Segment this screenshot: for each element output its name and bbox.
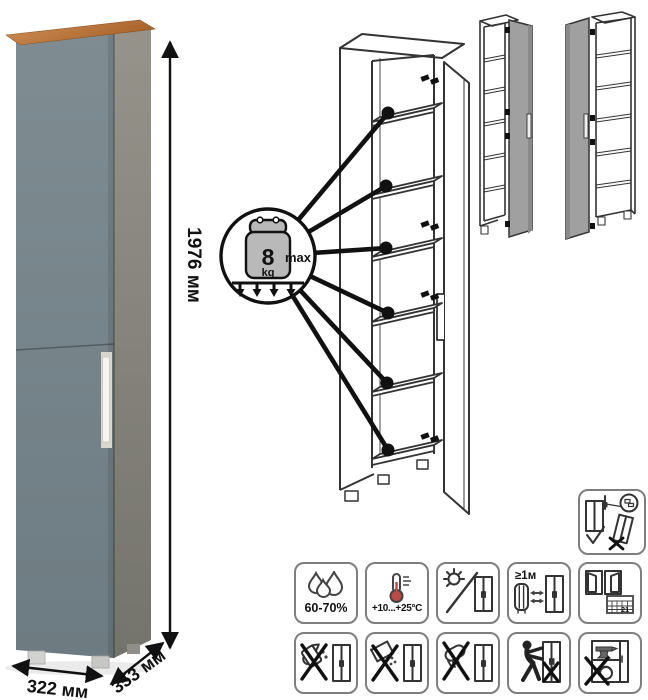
no-direct-sunlight-icon [436, 562, 500, 624]
x-mark [586, 658, 608, 684]
shelf-dots [380, 107, 395, 457]
height-dimension-label: 1976 мм [183, 227, 204, 303]
jug-crossed-icon [299, 638, 353, 688]
radiator-distance-icon: ≥1м [512, 568, 566, 618]
door-handle-outline [437, 294, 444, 340]
carcass-top-face [340, 34, 464, 58]
anchor-to-wall-drawing [582, 493, 642, 551]
foot-outline [378, 475, 389, 484]
overload-crossed-icon [583, 638, 637, 688]
person-figure [523, 641, 543, 681]
handle-mark [527, 114, 531, 138]
cabinet-side-panel [114, 26, 151, 658]
front-left-foot [28, 651, 45, 664]
product-sheet: 1976 мм 322 мм 353 мм [0, 0, 648, 700]
water-drops-icon [301, 571, 351, 601]
door-edge-shade [108, 32, 114, 658]
width-dimension-label: 322 мм [26, 676, 89, 700]
front-right-foot [92, 656, 109, 668]
no-dragging-icon [507, 632, 571, 694]
temperature-icon: +10...+25°C [365, 562, 429, 624]
product-render: 1976 мм 322 мм 353 мм [0, 0, 212, 700]
foot-outline [417, 460, 428, 469]
no-wet-cloth-icon [436, 632, 500, 694]
max-load-callout: 8 kg max [221, 209, 315, 303]
weight-unit: kg [262, 267, 275, 279]
foot-outline [345, 491, 358, 501]
powder-box-crossed-icon [370, 638, 424, 688]
cloth-hand-crossed-icon [441, 638, 495, 688]
anchor-to-wall-warning-icon [578, 489, 646, 555]
hinge-marks [590, 29, 595, 229]
door-variant-left-hinge [552, 8, 648, 246]
double-arrows [530, 591, 544, 604]
distance-from-heat-icon: ≥1м [507, 562, 571, 624]
max-label: max [285, 250, 312, 265]
open-door [444, 62, 469, 514]
shelf-load-diagram: 8 kg max [212, 6, 478, 522]
hinges [420, 72, 439, 446]
shelves [372, 103, 442, 465]
thermometer-icon [372, 573, 422, 603]
person-pushing-crossed-icon [512, 638, 566, 688]
rear-foot [127, 644, 140, 654]
no-pouring-liquids-icon [294, 632, 358, 694]
calendar-day-label: 21 [621, 605, 629, 614]
anvil [596, 647, 617, 658]
care-instructions-grid: 60-70% +10...+25°C [294, 562, 642, 694]
handle-mark [584, 114, 588, 138]
ventilation-calendar-icon: 21 [578, 562, 642, 624]
door-variant-right-hinge [472, 8, 550, 246]
calendar: 21 [607, 596, 633, 614]
x-mark [302, 645, 326, 679]
x-mark [373, 646, 397, 680]
humidity-label: 60-70% [304, 602, 347, 615]
window-calendar-icon: 21 [583, 568, 637, 618]
temperature-label: +10...+25°C [372, 604, 422, 614]
distance-label: ≥1м [515, 570, 536, 582]
x-mark [610, 538, 623, 549]
no-overloading-icon [578, 632, 642, 694]
sun-slash-wardrobe-icon [441, 568, 495, 618]
no-abrasive-powder-icon [365, 632, 429, 694]
opening-top-edge [372, 55, 434, 61]
door-edge [566, 24, 570, 239]
door-handle [103, 357, 110, 442]
humidity-icon: 60-70% [294, 562, 358, 624]
carcass-bottom-edge [340, 474, 374, 490]
